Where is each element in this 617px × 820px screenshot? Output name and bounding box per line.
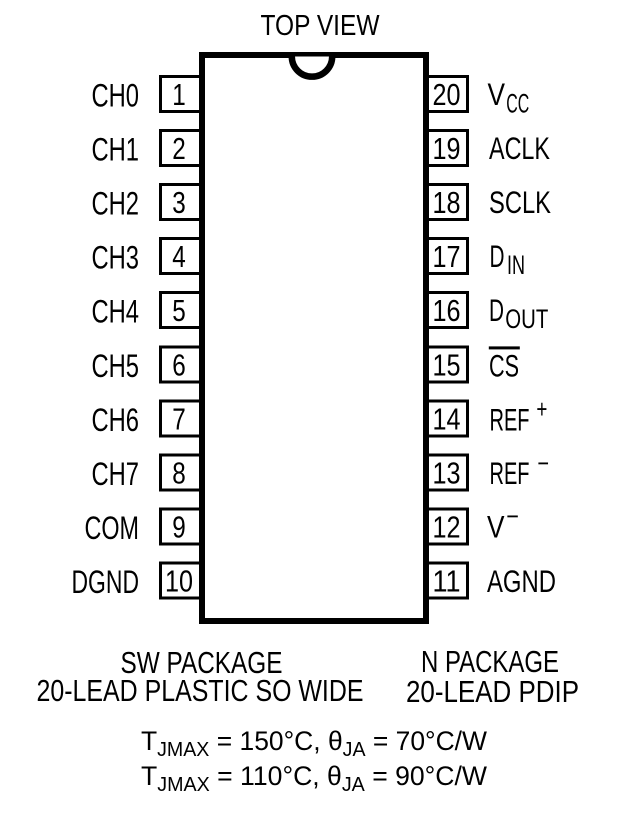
- svg-text:AGND: AGND: [487, 563, 556, 599]
- svg-text:11: 11: [433, 564, 461, 599]
- svg-text:SCLK: SCLK: [489, 184, 551, 220]
- svg-text:CH1: CH1: [92, 132, 140, 168]
- svg-text:ACLK: ACLK: [489, 130, 550, 166]
- svg-text:CH6: CH6: [92, 402, 140, 438]
- svg-text:CH0: CH0: [92, 78, 140, 114]
- svg-text:CH7: CH7: [92, 456, 140, 492]
- svg-text:−: −: [537, 448, 549, 478]
- svg-text:1: 1: [172, 77, 186, 112]
- svg-text:20: 20: [433, 77, 461, 112]
- svg-text:19: 19: [433, 131, 461, 166]
- svg-text:10: 10: [165, 564, 193, 599]
- svg-text:CH3: CH3: [92, 240, 140, 276]
- svg-text:4: 4: [172, 239, 186, 274]
- svg-text:20-LEAD PDIP: 20-LEAD PDIP: [406, 674, 579, 709]
- svg-text:2: 2: [172, 131, 186, 166]
- svg-text:OUT: OUT: [505, 304, 548, 334]
- svg-text:13: 13: [433, 456, 461, 491]
- svg-text:7: 7: [172, 402, 186, 437]
- svg-text:CS: CS: [489, 348, 519, 384]
- svg-text:REF: REF: [490, 455, 530, 491]
- svg-text:REF: REF: [490, 402, 530, 438]
- svg-text:+: +: [536, 394, 547, 424]
- svg-text:TJMAX = 110°C, θJA = 90°C/W: TJMAX = 110°C, θJA = 90°C/W: [141, 761, 487, 796]
- svg-text:COM: COM: [85, 510, 140, 546]
- svg-text:D: D: [490, 238, 505, 274]
- svg-text:14: 14: [433, 402, 461, 437]
- svg-text:CH4: CH4: [92, 294, 140, 330]
- svg-text:15: 15: [433, 348, 461, 383]
- svg-text:6: 6: [172, 348, 186, 383]
- svg-text:16: 16: [433, 293, 461, 328]
- svg-text:3: 3: [172, 185, 186, 220]
- svg-text:DGND: DGND: [72, 564, 140, 600]
- svg-text:CH5: CH5: [92, 348, 140, 384]
- svg-text:TJMAX = 150°C, θJA = 70°C/W: TJMAX = 150°C, θJA = 70°C/W: [141, 726, 487, 761]
- svg-text:IN: IN: [507, 250, 525, 280]
- svg-text:9: 9: [172, 510, 186, 545]
- svg-text:CC: CC: [506, 89, 529, 119]
- svg-text:−: −: [506, 501, 519, 531]
- svg-text:12: 12: [433, 510, 461, 545]
- svg-text:TOP VIEW: TOP VIEW: [261, 10, 381, 42]
- svg-text:D: D: [489, 292, 504, 328]
- svg-text:5: 5: [172, 293, 186, 328]
- svg-text:18: 18: [433, 185, 461, 220]
- svg-text:V: V: [488, 76, 506, 112]
- svg-text:8: 8: [172, 456, 186, 491]
- svg-text:20-LEAD PLASTIC SO WIDE: 20-LEAD PLASTIC SO WIDE: [37, 673, 364, 708]
- svg-text:V: V: [487, 509, 505, 545]
- svg-text:17: 17: [433, 239, 461, 274]
- svg-text:CH2: CH2: [92, 186, 140, 222]
